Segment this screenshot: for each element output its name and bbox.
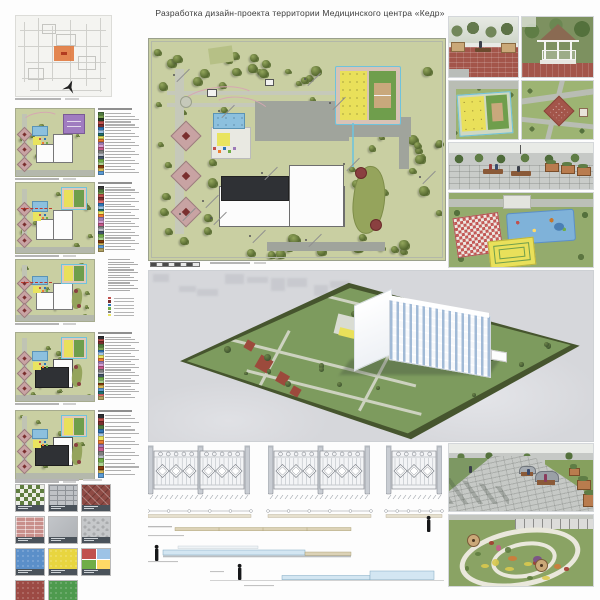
annotation-line (108, 280, 138, 281)
gazebo-center (472, 539, 475, 542)
legend-label-line (105, 223, 135, 224)
planter-green (578, 476, 588, 481)
kids-equipment-dot (39, 441, 41, 443)
swatch-caption-line (18, 540, 28, 541)
quad-tile (82, 549, 96, 559)
legend-title-line (98, 410, 132, 412)
building-wing (53, 134, 72, 163)
caption-text (15, 403, 59, 405)
legend-label-line (105, 367, 139, 368)
red-floor (522, 63, 593, 77)
legend-label-line (105, 169, 135, 170)
plaza-diamond-center (22, 147, 26, 151)
annotation-line (108, 282, 130, 283)
legend-label-line (105, 364, 135, 365)
planter-box (583, 494, 594, 507)
sections-and-dimensions (148, 505, 446, 591)
legend-label-line (105, 339, 135, 340)
legend-label-line (105, 157, 131, 158)
kids-equipment-dot (44, 441, 46, 443)
swatch-pattern (82, 517, 110, 537)
tree-icon (187, 306, 192, 311)
city-block-blur (247, 277, 268, 284)
legend-label-line (105, 116, 135, 117)
swatch-caption-line (84, 572, 94, 573)
kids-equipment-dot (39, 287, 41, 289)
flower-bed (505, 567, 513, 571)
legend-label-line (105, 459, 131, 460)
legend-label-line (105, 444, 139, 445)
swatch-caption (82, 569, 110, 575)
tree-icon (319, 367, 324, 372)
zone-line (67, 121, 81, 122)
legend-label-line (105, 243, 139, 244)
kids-equipment-dot (39, 138, 41, 140)
legend-label-line (105, 124, 135, 125)
paving-swatch (81, 548, 111, 576)
paving-swatch (81, 516, 111, 544)
city-block (42, 24, 56, 34)
gazebo-base (540, 60, 576, 64)
planter (501, 43, 516, 53)
planter-box (561, 165, 575, 174)
render-winding-garden-aerial (448, 514, 594, 587)
annotation-line (108, 262, 134, 263)
legend-label-line (105, 470, 131, 471)
swatch-caption-line (18, 572, 28, 573)
swatch-caption-line (51, 572, 61, 573)
legend-label-line (105, 195, 131, 196)
legend-label-line (105, 151, 135, 152)
fence-elevation (386, 441, 442, 508)
inner-frame (151, 41, 443, 258)
person-figure (469, 466, 472, 473)
legend-label-line (105, 466, 139, 467)
legend-label-line (105, 198, 135, 199)
mini-site-plan (15, 182, 95, 254)
legend-label-line (105, 426, 131, 427)
caption-text (15, 255, 59, 257)
kids-equipment-dot (46, 142, 48, 144)
court-yellow (64, 190, 74, 208)
paving-swatch (15, 580, 45, 600)
mini-site-plan (15, 259, 95, 322)
swatch-caption-line (51, 540, 61, 541)
kids-equipment-dot (44, 138, 46, 140)
tree-icon (210, 325, 215, 330)
kids-equipment-dot (46, 366, 48, 368)
master-plan (148, 38, 446, 261)
legend-label-line (105, 148, 131, 149)
city-block (56, 34, 76, 46)
legend-label-line (105, 201, 139, 202)
legend-chip (108, 300, 111, 302)
sky-gap (522, 17, 536, 27)
legend-label-line (105, 121, 131, 122)
city-block-blur (287, 278, 308, 286)
legend-label-line (105, 394, 131, 395)
legend-label-line (105, 463, 135, 464)
caption-text (65, 98, 79, 100)
swatch-caption-line (18, 570, 32, 571)
planter-green (546, 160, 556, 164)
fence-elevation (148, 441, 250, 508)
diamond-pattern (549, 101, 569, 121)
planter-box (545, 163, 559, 172)
court-green (486, 94, 509, 129)
quad-tile (82, 560, 96, 570)
kids-equipment-dot (42, 217, 44, 219)
legend-label-line (105, 246, 131, 247)
planter-box (569, 468, 580, 476)
legend-chip (108, 297, 111, 299)
legend-label-line (105, 350, 139, 351)
swatch-caption (16, 505, 44, 511)
swatch-caption-line (84, 538, 98, 539)
annotation-line (108, 285, 134, 286)
flower-bed (508, 556, 517, 561)
legend-label-line (105, 448, 131, 449)
legend-label-line (114, 301, 134, 302)
swatch-caption-line (51, 506, 65, 507)
planter-box (577, 167, 591, 176)
building-footprint-roof (35, 367, 70, 388)
kids-equipment-dot (46, 290, 48, 292)
render-gazebo (521, 16, 594, 78)
flower-bed (542, 576, 550, 581)
planter-green (584, 490, 594, 495)
tree-icon (267, 369, 272, 374)
annotation-line (108, 259, 130, 260)
legend-label-line (105, 212, 131, 213)
tree-icon (88, 234, 92, 238)
presentation-board: Разработка дизайн-проекта территории Мед… (0, 0, 600, 600)
caption-text (210, 262, 250, 264)
sports-court (61, 187, 86, 210)
plan-legend (96, 332, 140, 400)
planter-green (570, 464, 577, 469)
legend-label-line (105, 133, 135, 134)
road (16, 395, 94, 401)
plaza-diamond-center (22, 295, 26, 299)
plan-legend (96, 410, 140, 478)
legend-label-line (105, 397, 135, 398)
swatch-caption-line (18, 538, 32, 539)
legend-label-line (105, 206, 135, 207)
paving-swatch (15, 484, 45, 512)
gazebo-dot (74, 443, 78, 447)
small-gazebo (579, 108, 588, 117)
tree-icon (337, 382, 342, 387)
legend-label-line (105, 441, 135, 442)
render-playground-aerial (448, 192, 594, 268)
tree-icon (285, 381, 291, 387)
tree-icon (200, 373, 205, 378)
swatch-caption-line (84, 506, 98, 507)
caption-text (63, 255, 76, 257)
legend-label-line (105, 232, 135, 233)
sports-court (61, 337, 86, 359)
tree-icon (36, 420, 41, 425)
building-footprint-roof (35, 445, 70, 466)
swatch-pattern (82, 549, 110, 569)
legend-label-line (105, 375, 139, 376)
legend-label-line (105, 345, 131, 346)
legend-label-line (105, 145, 139, 146)
caption-text (63, 481, 76, 483)
legend-label-line (105, 337, 131, 338)
swatch-caption (82, 505, 110, 511)
sports-court (61, 415, 86, 437)
render-plaza-aerial (521, 80, 594, 140)
person-figure (489, 164, 492, 170)
legend-chip (108, 311, 111, 313)
render-terrace-benches (448, 142, 594, 190)
legend-label-line (105, 172, 139, 173)
legend-label-line (105, 226, 139, 227)
annotation-line (108, 277, 134, 278)
paving-swatch (48, 580, 78, 600)
legend-label-line (105, 383, 139, 384)
plaza-diamond (17, 142, 33, 158)
tree-icon (544, 342, 549, 347)
legend-chip (108, 304, 111, 306)
swatch-caption (16, 537, 44, 543)
court-green (74, 266, 84, 281)
legend-chip (98, 248, 104, 252)
court-yellow (64, 266, 74, 281)
swatch-pattern (49, 485, 77, 505)
city-block (28, 68, 44, 80)
yellow-maze (488, 237, 537, 268)
legend-label-line (105, 418, 135, 419)
plaza-diamond-center (22, 238, 26, 242)
caption-text (63, 178, 76, 180)
gray-path (449, 69, 469, 77)
building-wing (53, 210, 72, 240)
building-wing (53, 283, 72, 309)
kids-equipment-dot (42, 366, 44, 368)
boundary-dashed (21, 208, 52, 209)
kids-equipment-dot (42, 142, 44, 144)
plaza-diamond-center (22, 449, 26, 453)
caption-text (15, 178, 59, 180)
aerial-render-3d (148, 270, 594, 442)
kids-equipment-dot (42, 444, 44, 446)
plan-legend (96, 182, 140, 252)
road (16, 315, 94, 321)
bench (475, 48, 491, 52)
swatch-caption (49, 537, 77, 543)
swatch-caption (82, 537, 110, 543)
swatch-caption-line (18, 506, 32, 507)
caption-text (63, 403, 76, 405)
legend-label-line (105, 113, 131, 114)
road-band (449, 81, 518, 89)
plaza-diamond-center (22, 434, 26, 438)
paving-swatch (15, 548, 45, 576)
person-figure (517, 166, 520, 172)
garden-gazebo (467, 534, 480, 547)
legend-label-line (105, 422, 139, 423)
city-block-blur (271, 278, 286, 292)
caption-text (63, 323, 76, 325)
swatch-caption (16, 569, 44, 575)
legend-label-line (105, 204, 131, 205)
caption-text (15, 323, 59, 325)
gazebo-railing (542, 50, 576, 60)
legend-chip (98, 171, 104, 175)
swatch-caption-line (84, 540, 94, 541)
caption-text (254, 262, 266, 264)
swatch-caption-line (18, 508, 28, 509)
annotation-line (108, 272, 138, 273)
legend-label-line (105, 389, 135, 390)
legend-label-line (105, 361, 131, 362)
legend-label-line (105, 433, 139, 434)
tree-icon (533, 289, 538, 294)
plaza-diamond-center (22, 222, 26, 226)
street-line (24, 22, 25, 82)
annotation-line (108, 267, 130, 268)
kids-pool (32, 201, 48, 211)
swatch-caption-line (51, 570, 65, 571)
tree-icon (224, 346, 231, 353)
swatch-caption (49, 569, 77, 575)
caption-text (15, 481, 59, 483)
swatch-caption (49, 505, 77, 511)
plaza-diamond-center (22, 132, 26, 136)
court-inner-tan (491, 103, 503, 122)
legend-label-line (105, 452, 135, 453)
legend-label-line (105, 249, 135, 250)
plaza-diamond (17, 202, 33, 218)
tree-icon (264, 354, 271, 361)
swatch-pattern (16, 581, 44, 600)
kids-equipment-dot (46, 217, 48, 219)
road (16, 247, 94, 253)
tree-icon (519, 362, 523, 366)
legend-label-line (105, 189, 135, 190)
legend-label-line (105, 372, 135, 373)
paving-swatch (81, 484, 111, 512)
planter-green (562, 162, 572, 166)
swatch-pattern (49, 517, 77, 537)
fence-and-section-drawings (148, 441, 446, 591)
court-yellow (460, 96, 486, 132)
plaza-diamond (17, 444, 33, 460)
plaza-diamond-center (22, 464, 26, 468)
legend-label-line (105, 474, 135, 475)
plaza-diamond (17, 233, 33, 249)
tree-icon (76, 134, 79, 137)
flower-bed (496, 545, 500, 551)
legend-label-line (105, 136, 139, 137)
city-block-blur (179, 286, 196, 292)
swatch-pattern (16, 549, 44, 569)
legend-label-line (105, 342, 139, 343)
legend-label-line (105, 127, 139, 128)
legend-label-line (105, 119, 139, 120)
plaza-diamond-center (22, 386, 26, 390)
tree-icon (179, 312, 184, 317)
swatch-caption-line (51, 508, 61, 509)
kids-equipment-dot (46, 444, 48, 446)
street-line (30, 90, 102, 91)
quad-tile (97, 549, 111, 559)
mini-site-plan (15, 410, 95, 480)
gazebo-dot (74, 365, 78, 369)
legend-chip (108, 314, 111, 316)
kids-equipment-dot (42, 290, 44, 292)
city-block-blur (225, 274, 244, 284)
swatch-caption-line (51, 538, 65, 539)
render-plaza-benches (448, 16, 519, 78)
plaza-diamond-center (22, 371, 26, 375)
legend-label-line (114, 305, 134, 306)
tree-icon (244, 372, 248, 376)
legend-label-line (105, 160, 135, 161)
tree-icon (56, 192, 60, 196)
legend-label-line (105, 378, 131, 379)
render-sports-courts-aerial (448, 80, 519, 140)
gazebo-dot (77, 460, 81, 464)
tree-icon (244, 295, 250, 301)
swatch-pattern (16, 517, 44, 537)
site-highlight-mark (61, 52, 67, 55)
legend-title-line (98, 332, 132, 334)
kids-equipment-dot (44, 287, 46, 289)
court-yellow (64, 340, 74, 357)
city-block (78, 56, 96, 70)
legend-label-line (105, 142, 135, 143)
paving-swatch (48, 516, 78, 544)
sports-court (61, 264, 86, 284)
legend-label-line (105, 215, 135, 216)
plaza-diamond (17, 459, 33, 475)
quad-tile (97, 560, 111, 570)
plaza-diamond (17, 217, 33, 233)
person-figure (479, 41, 482, 48)
kids-equipment-dot (39, 363, 41, 365)
legend-label-line (105, 187, 131, 188)
legend-label-line (105, 218, 139, 219)
city-block-blur (153, 274, 169, 282)
annotation-line (108, 264, 138, 265)
annotation-paragraph (108, 259, 140, 320)
courts-wrap (457, 91, 514, 137)
paving-swatch (48, 484, 78, 512)
street-line (20, 30, 106, 31)
legend-label-line (105, 386, 131, 387)
mini-site-plan (15, 108, 95, 177)
legend-label-line (105, 154, 139, 155)
kids-equipment-dot (44, 363, 46, 365)
legend-label-line (105, 209, 139, 210)
swatch-caption-line (84, 508, 94, 509)
legend-label-line (105, 240, 135, 241)
caption-text (15, 479, 79, 481)
kids-equipment-dot (39, 214, 41, 216)
legend-chip (108, 307, 111, 309)
legend-label-line (105, 235, 139, 236)
kids-pool (32, 429, 48, 439)
swatch-caption-line (84, 570, 98, 571)
city-block-blur (197, 289, 218, 296)
court-green (74, 418, 84, 435)
plaza-diamond-center (22, 162, 26, 166)
legend-label-line (105, 437, 131, 438)
